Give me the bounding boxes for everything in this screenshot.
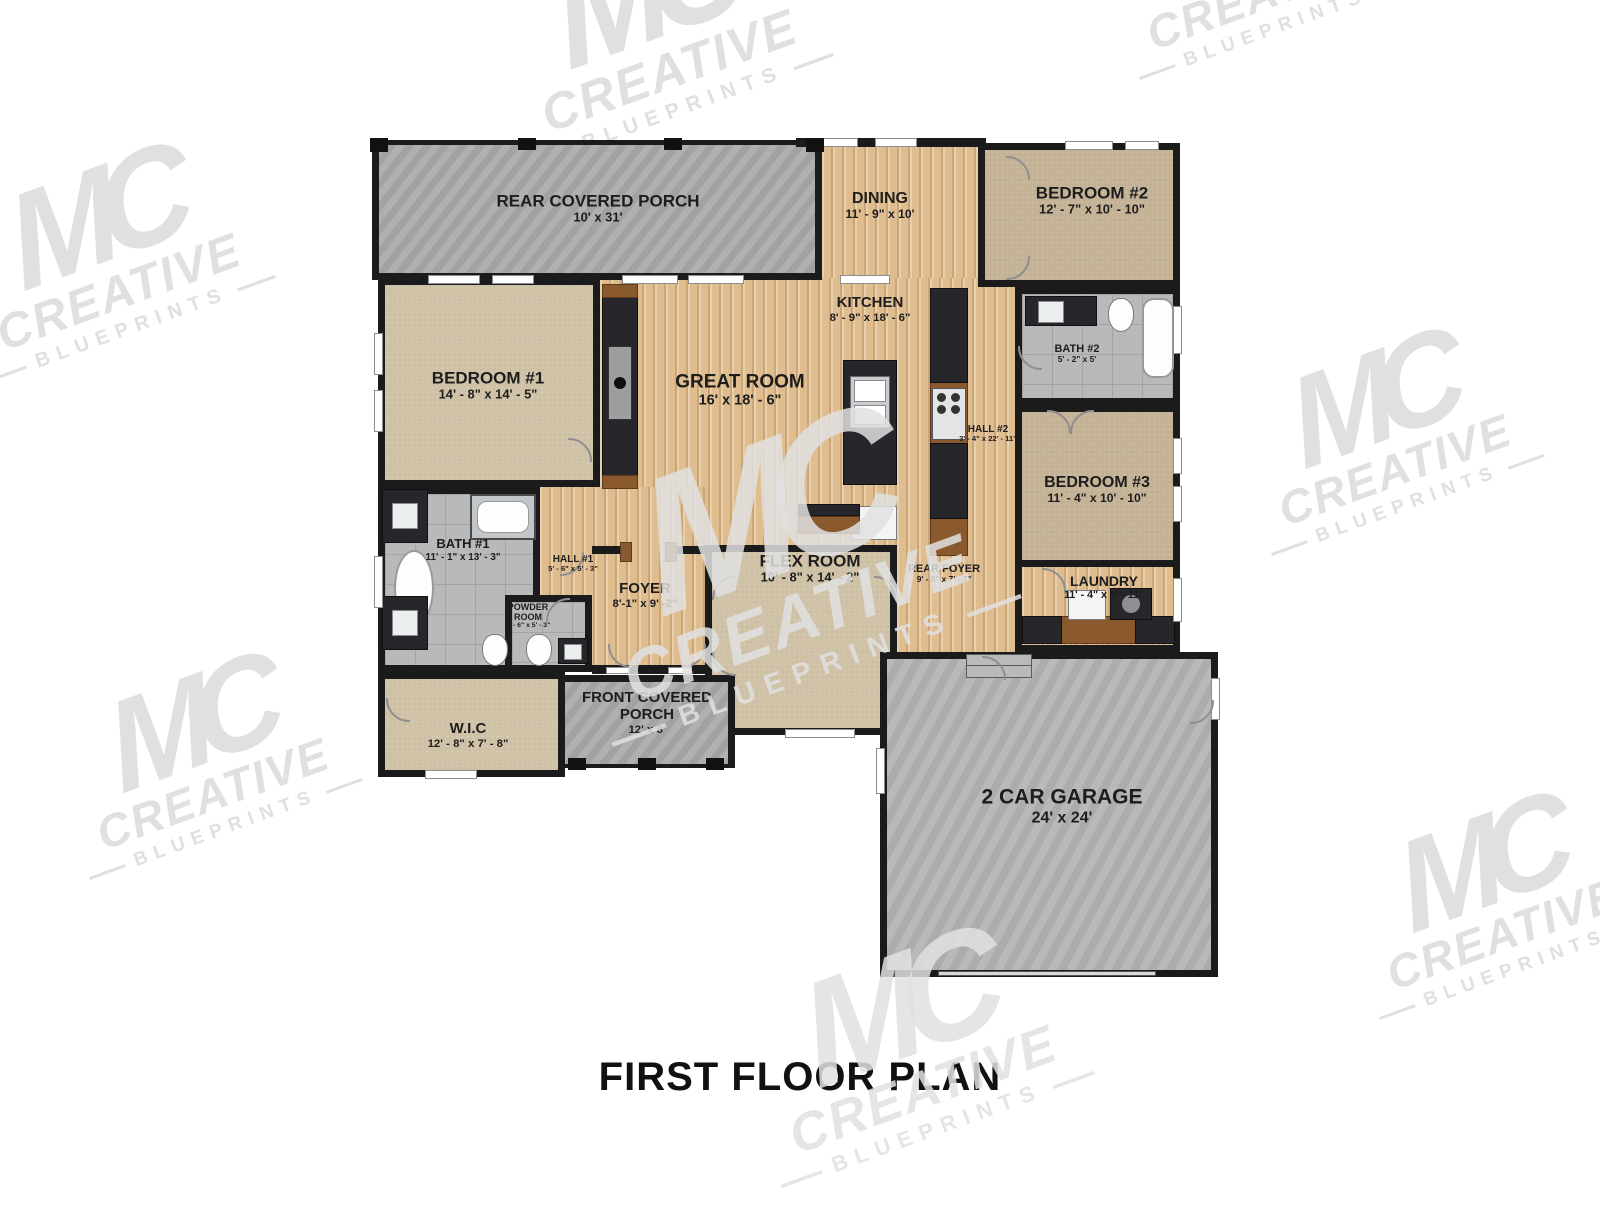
laundry-counter-top: [1022, 616, 1062, 644]
window: [1173, 438, 1182, 474]
media-wall-trim: [602, 475, 638, 489]
cased-opening-jamb: [665, 542, 677, 562]
window: [428, 275, 480, 284]
dash: [89, 864, 126, 880]
window: [374, 333, 383, 375]
label-bedroom2: BEDROOM #212' - 7" x 10' - 10": [1036, 183, 1148, 217]
bench-top: [798, 504, 860, 516]
label-hall2: HALL #23' - 4" x 22' - 11": [956, 424, 1020, 444]
window: [622, 275, 678, 284]
vanity-sink: [392, 503, 418, 529]
window: [374, 390, 383, 432]
label-wic: W.I.C12' - 8" x 7' - 8": [428, 721, 509, 751]
dash: [793, 53, 833, 70]
window: [688, 275, 744, 284]
watermark-left: MC CREATIVE BLUEPRINTS: [0, 112, 294, 397]
entry-sidelight: [668, 667, 692, 674]
window: [1173, 306, 1182, 354]
toilet: [526, 634, 552, 666]
label-garage: 2 CAR GARAGE24' x 24': [981, 785, 1142, 826]
vanity: [382, 596, 428, 650]
porch-column: [568, 758, 586, 770]
window: [875, 138, 917, 147]
porch-column: [518, 138, 536, 150]
entry-sidelight: [606, 667, 630, 674]
toilet: [1108, 298, 1134, 332]
watermark-mc-logo: MC: [1315, 761, 1600, 968]
label-rear-foyer: REAR FOYER9' - 8" x 7' - 7": [908, 563, 980, 585]
burners: [933, 389, 965, 418]
label-flex: FLEX ROOM10' - 8" x 14' - 2": [759, 551, 860, 585]
dash: [1379, 1004, 1416, 1020]
laundry-counter-top: [1135, 616, 1175, 644]
label-kitchen: KITCHEN8' - 9" x 18' - 6": [830, 295, 911, 325]
watermark-mc-logo: MC: [1207, 297, 1532, 504]
vanity: [1025, 296, 1097, 326]
fireplace-ring: [614, 377, 626, 389]
label-hall1: HALL #15' - 6" x 5' - 3": [548, 554, 598, 574]
window: [785, 729, 855, 738]
porch-column: [706, 758, 724, 770]
page-title: FIRST FLOOR PLAN: [599, 1055, 1002, 1100]
toilet: [482, 634, 508, 666]
sink-basin: [854, 405, 886, 425]
label-laundry: LAUNDRY11' - 4" x 5' - 11": [1064, 574, 1144, 602]
dash: [1052, 1071, 1094, 1089]
dash: [237, 275, 276, 292]
vanity-sink: [1038, 301, 1064, 323]
watermark-top-right: MC CREATIVE BLUEPRINTS: [1070, 0, 1430, 94]
wall-foyer-opening-right: [673, 546, 705, 554]
watermark-right: MC CREATIVE BLUEPRINTS: [1202, 298, 1562, 569]
vanity-sink: [392, 610, 418, 636]
island-sink: [850, 376, 890, 428]
label-bath2: BATH #25' - 2" x 5': [1054, 343, 1099, 365]
porch-column: [370, 138, 388, 152]
kitchen-counter-top: [930, 288, 968, 383]
label-bedroom1: BEDROOM #114' - 8" x 14' - 5": [432, 368, 544, 402]
label-front-porch: FRONT COVERED PORCH12' x 8': [565, 690, 730, 736]
window: [1173, 486, 1182, 522]
shower-tub: [477, 501, 529, 533]
window: [374, 556, 383, 608]
watermark-mc-logo: MC: [25, 621, 350, 828]
cased-opening-jamb: [620, 542, 632, 562]
porch-column: [664, 138, 682, 150]
powder-vanity: [558, 638, 588, 664]
label-foyer: FOYER8'-1" x 9' -2": [613, 581, 678, 611]
dash: [326, 778, 363, 794]
shower: [470, 494, 536, 540]
kitchen-counter-top: [930, 443, 968, 519]
sink-basin: [854, 380, 886, 402]
label-bath1: BATH #111' - 1" x 13' - 3": [426, 537, 501, 563]
bench: [798, 516, 860, 534]
porch-column: [806, 138, 824, 152]
window: [840, 275, 890, 284]
dash: [1271, 540, 1308, 556]
watermark-mc-logo: MC: [463, 0, 820, 107]
rear-foyer-floor: [897, 545, 1020, 652]
label-great-room: GREAT ROOM16' x 18' - 6": [675, 371, 804, 408]
window: [425, 770, 477, 779]
watermark-mc-logo: MC: [0, 110, 263, 327]
fireplace: [608, 346, 632, 420]
watermark-bottom-right: MC CREATIVE BLUEPRINTS: [1310, 762, 1600, 1033]
bathtub: [1142, 298, 1174, 378]
dash: [1508, 454, 1545, 470]
window: [1125, 141, 1159, 150]
watermark-bottom-left: MC CREATIVE BLUEPRINTS: [20, 622, 380, 893]
vanity: [382, 489, 428, 543]
dash: [1139, 64, 1176, 80]
label-powder: POWDER ROOM5' - 6" x 5' - 3": [498, 602, 558, 630]
label-bedroom3: BEDROOM #311' - 4" x 10' - 10": [1044, 474, 1150, 506]
label-rear-porch: REAR COVERED PORCH10' x 31': [493, 191, 703, 225]
watermark-mc-logo: MC: [1075, 0, 1400, 28]
window: [876, 748, 885, 794]
window: [1065, 141, 1113, 150]
dash: [780, 1170, 822, 1188]
floor-plan: REAR COVERED PORCH10' x 31' DINING11' - …: [370, 138, 1218, 979]
dash: [0, 365, 27, 382]
window: [818, 138, 858, 147]
media-wall-trim: [602, 284, 638, 298]
garage-side-door-opening: [1211, 678, 1220, 720]
porch-column: [638, 758, 656, 770]
vanity-sink: [564, 644, 582, 660]
window: [492, 275, 534, 284]
window: [1173, 578, 1182, 622]
label-dining: DINING11' - 9" x 10': [846, 190, 915, 222]
garage-door: [938, 971, 1156, 976]
page: { "title": "FIRST FLOOR PLAN", "watermar…: [0, 0, 1600, 1200]
